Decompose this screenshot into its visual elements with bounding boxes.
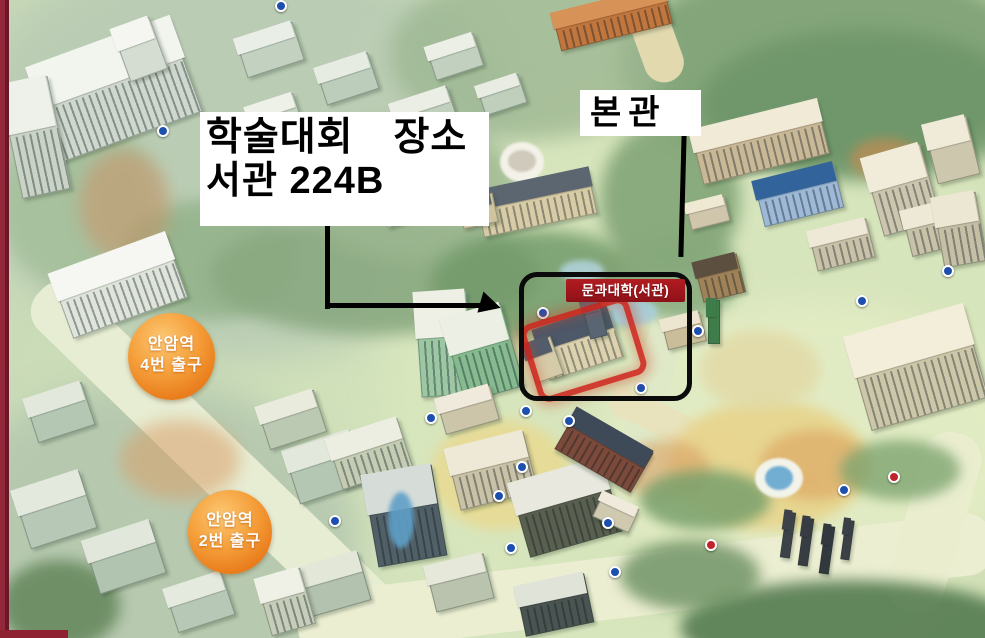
map-bldg-roof [706,298,716,317]
map-marker [505,542,517,554]
venue-annotation-box: 학술대회 장소 서관 224B [200,112,489,226]
map-marker [602,517,614,529]
station-exit2-line-1: 안암역 [188,511,272,532]
map-bldg-roof [842,517,852,535]
map-tree [765,466,793,490]
map-bldg-roof [782,509,793,530]
station-exit4-line-1: 안암역 [128,335,215,356]
map-marker [705,539,717,551]
map-marker [425,412,437,424]
map-marker [329,515,341,527]
map-marker [275,0,287,12]
map-marker [692,325,704,337]
map-bldg-roof [254,388,317,425]
main-building-annotation-box: 본관 [580,90,701,136]
map-tree [620,540,760,610]
map-marker [838,484,850,496]
map-left-edge-border [0,0,9,638]
station-exit2-badge: 안암역 2번 출구 [188,490,272,574]
map-bldg-roof [800,515,811,537]
map-bldg-roof [930,190,978,228]
campus-map-image: 문과대학(서관) 학술대회 장소 서관 224B 본관 안암역 4번 출구 안암… [0,0,985,638]
map-bldg-roof [821,523,832,545]
station-exit4-badge: 안암역 4번 출구 [128,313,215,400]
map-bldg-roof [324,416,402,461]
venue-pointer-line-horizontal [325,303,484,308]
venue-line-1: 학술대회 장소 [206,116,489,161]
map-tree [508,150,536,172]
venue-pointer-line-vertical [325,224,330,309]
map-bldg-roof [22,380,85,417]
map-tree [840,440,960,500]
venue-line-2: 서관 224B [206,161,489,203]
map-bottom-edge-border [0,630,68,638]
liberal-arts-building-label: 문과대학(서관) [566,279,685,302]
map-marker [609,566,621,578]
map-bldg [708,300,720,344]
map-marker [942,265,954,277]
station-exit4-line-2: 4번 출구 [128,356,215,377]
station-exit2-line-2: 2번 출구 [188,532,272,553]
map-marker [856,295,868,307]
map-marker [888,471,900,483]
map-marker [563,415,575,427]
map-marker [493,490,505,502]
map-tree [640,470,770,530]
map-tree [120,420,240,500]
map-marker [516,461,528,473]
map-marker [157,125,169,137]
map-marker [520,405,532,417]
map-tree [388,492,414,548]
